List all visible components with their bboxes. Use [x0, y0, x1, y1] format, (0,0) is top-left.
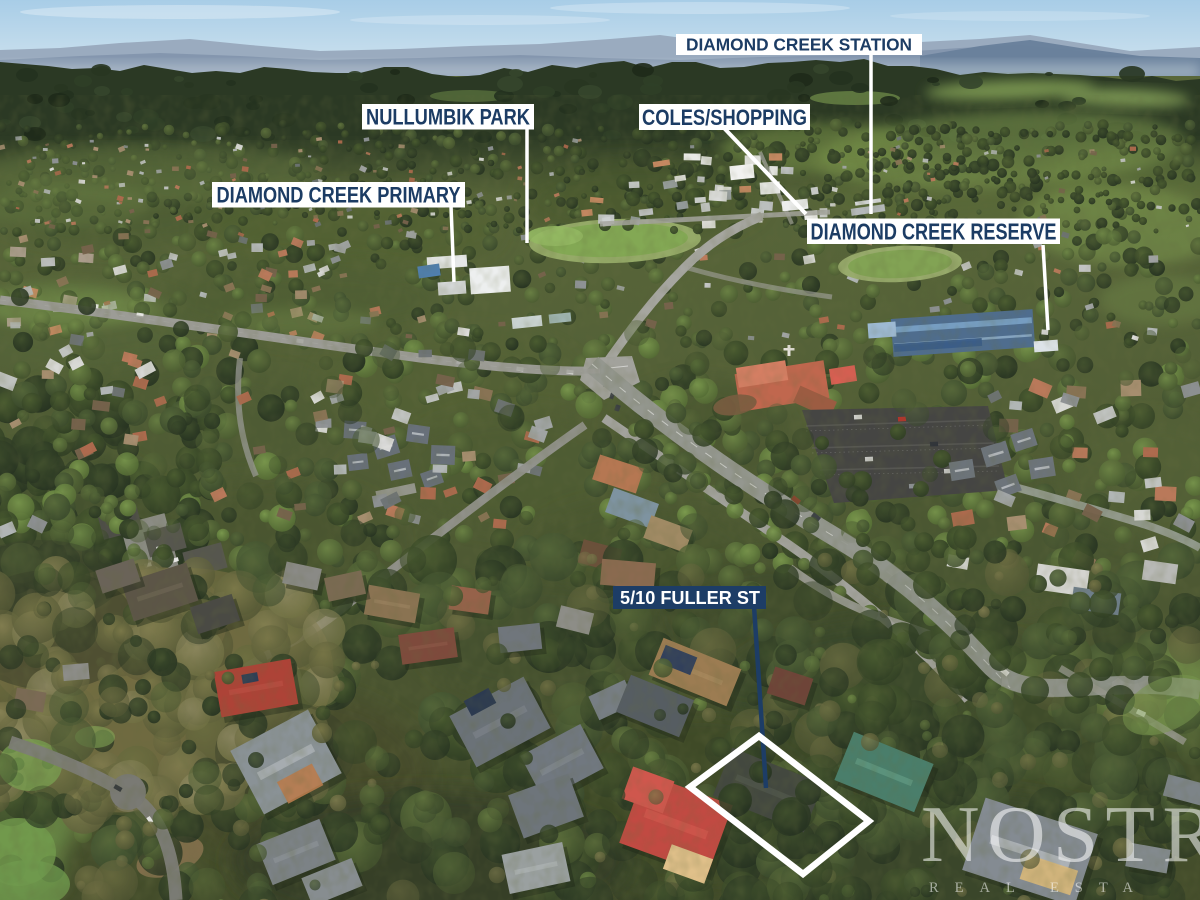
svg-text:NOSTR: NOSTR — [921, 789, 1200, 879]
svg-text:5/10 FULLER ST: 5/10 FULLER ST — [620, 588, 760, 608]
svg-text:COLES/SHOPPING: COLES/SHOPPING — [642, 105, 807, 130]
svg-text:DIAMOND CREEK STATION: DIAMOND CREEK STATION — [686, 35, 912, 55]
svg-text:NULLUMBIK PARK: NULLUMBIK PARK — [366, 105, 530, 130]
svg-text:DIAMOND CREEK PRIMARY: DIAMOND CREEK PRIMARY — [217, 183, 461, 208]
svg-text:REAL ESTA: REAL ESTA — [929, 880, 1149, 896]
svg-text:DIAMOND CREEK RESERVE: DIAMOND CREEK RESERVE — [811, 218, 1057, 244]
